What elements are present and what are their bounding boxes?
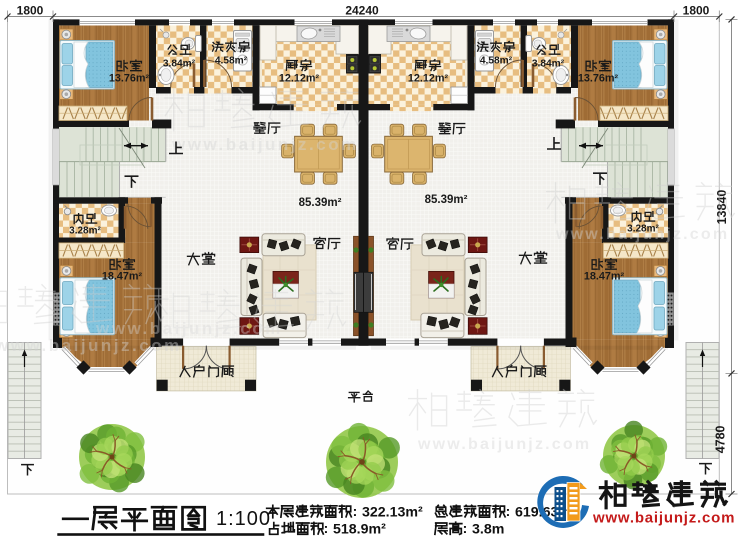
svg-text:1800: 1800 — [683, 4, 710, 18]
svg-text::: : — [353, 503, 358, 519]
svg-text:www.baijunjz.com: www.baijunjz.com — [0, 336, 182, 355]
svg-text:85.39m²: 85.39m² — [425, 194, 468, 206]
svg-text::: : — [463, 520, 468, 536]
svg-text:3.8m: 3.8m — [472, 522, 504, 538]
svg-text:85.39m²: 85.39m² — [299, 197, 342, 209]
svg-text:18.47m²: 18.47m² — [584, 270, 625, 282]
svg-text:13.76m²: 13.76m² — [109, 72, 150, 84]
svg-text:4.58m²: 4.58m² — [215, 55, 248, 66]
svg-text:4780: 4780 — [714, 425, 728, 453]
svg-text:4.58m²: 4.58m² — [480, 55, 513, 66]
svg-text:www.baijunjz.com: www.baijunjz.com — [171, 135, 359, 154]
svg-text::: : — [506, 503, 511, 519]
svg-text:3.84m²: 3.84m² — [532, 58, 565, 69]
svg-text:322.13m²: 322.13m² — [362, 504, 423, 520]
svg-text:1800: 1800 — [17, 4, 44, 18]
svg-text:www.baijunjz.com: www.baijunjz.com — [95, 319, 283, 338]
svg-text:1:100: 1:100 — [216, 508, 271, 530]
svg-text:13.76m²: 13.76m² — [578, 72, 619, 84]
svg-text:3.28m²: 3.28m² — [69, 225, 101, 236]
svg-text:3.28m²: 3.28m² — [627, 223, 659, 234]
svg-text:18.47m²: 18.47m² — [102, 270, 143, 282]
svg-text::: : — [324, 520, 329, 536]
svg-text:12.12m²: 12.12m² — [279, 72, 320, 84]
svg-text:www.baijunjz.com: www.baijunjz.com — [417, 436, 591, 453]
svg-text:12.12m²: 12.12m² — [408, 72, 449, 84]
svg-text:3.84m²: 3.84m² — [163, 58, 196, 69]
svg-text:24240: 24240 — [345, 4, 379, 18]
svg-text:518.9m²: 518.9m² — [333, 522, 386, 538]
svg-text:www.baijunjz.com: www.baijunjz.com — [592, 510, 735, 527]
